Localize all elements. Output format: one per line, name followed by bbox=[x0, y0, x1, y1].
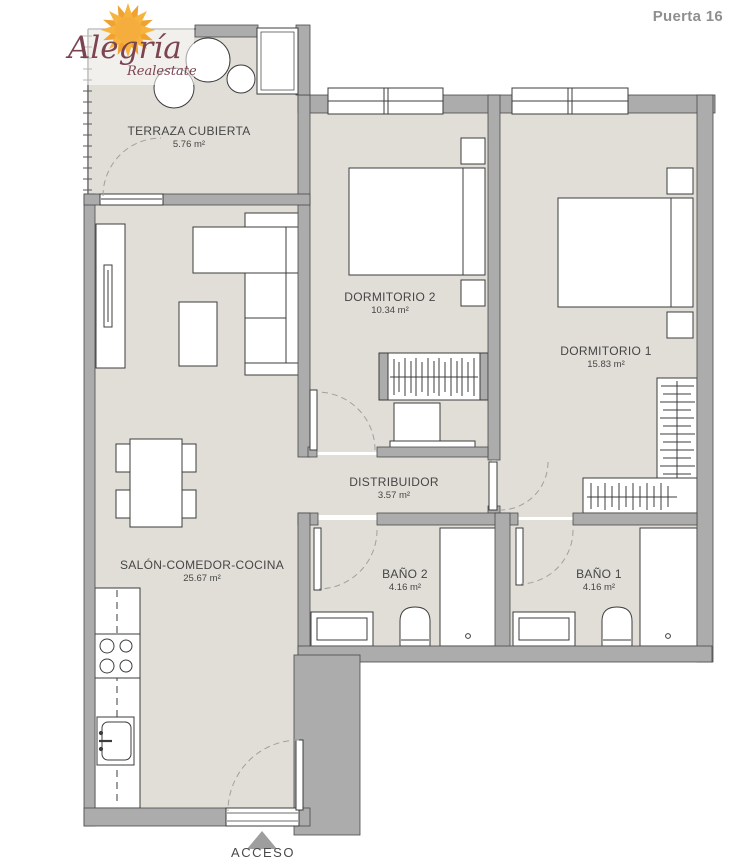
door-leaf-entrance bbox=[296, 740, 303, 810]
dining-chair bbox=[116, 444, 130, 472]
sofa-back bbox=[245, 213, 301, 227]
entrance-label: ACCESO bbox=[231, 845, 295, 860]
dining-table bbox=[130, 439, 182, 527]
window-terraza bbox=[257, 28, 298, 94]
nightstand bbox=[667, 312, 693, 338]
faucet-icon bbox=[99, 747, 102, 750]
dresser bbox=[394, 403, 440, 443]
door-leaf-dormitorio1 bbox=[489, 462, 497, 510]
door-leaf-bano2 bbox=[314, 528, 321, 590]
vanity-bano2 bbox=[311, 612, 373, 646]
entrance-threshold bbox=[226, 808, 299, 826]
logo-subtitle-text: Realestate bbox=[127, 64, 197, 79]
agency-logo: Alegría Realestate bbox=[60, 0, 260, 110]
dining-chair bbox=[182, 444, 196, 472]
nightstand bbox=[461, 138, 485, 164]
cooktop bbox=[95, 634, 140, 678]
faucet-icon bbox=[99, 731, 102, 734]
shower-bano2 bbox=[440, 528, 497, 646]
bed-dormitorio2 bbox=[349, 168, 485, 275]
dining-chair bbox=[116, 490, 130, 518]
label-bano2: BAÑO 2 4.16 m² bbox=[382, 567, 428, 593]
wardrobe-side bbox=[480, 353, 488, 400]
label-bano1: BAÑO 1 4.16 m² bbox=[576, 567, 622, 593]
unit-label: Puerta 16 bbox=[653, 8, 723, 25]
label-distribuidor: DISTRIBUIDOR 3.57 m² bbox=[349, 475, 439, 501]
floor-plan-page: Alegría Realestate Puerta 16 TERRAZA CUB… bbox=[0, 0, 750, 865]
bed-dormitorio1 bbox=[558, 198, 693, 307]
shower-bano1 bbox=[640, 528, 697, 646]
nightstand bbox=[667, 168, 693, 194]
coffee-table bbox=[179, 302, 217, 366]
wardrobe-side bbox=[379, 353, 388, 400]
door-leaf-bano1 bbox=[516, 528, 523, 585]
dining-chair bbox=[182, 490, 196, 518]
label-dormitorio1: DORMITORIO 1 15.83 m² bbox=[560, 344, 651, 370]
door-leaf-dormitorio2 bbox=[310, 390, 317, 450]
label-dormitorio2: DORMITORIO 2 10.34 m² bbox=[344, 290, 435, 316]
logo-brand-text: Alegría bbox=[68, 30, 182, 66]
label-terraza: TERRAZA CUBIERTA 5.76 m² bbox=[127, 124, 250, 150]
nightstand bbox=[461, 280, 485, 306]
label-salon: SALÓN-COMEDOR-COCINA 25.67 m² bbox=[120, 558, 284, 584]
floor-plan-drawing bbox=[0, 0, 750, 865]
vanity-bano1 bbox=[513, 612, 575, 646]
